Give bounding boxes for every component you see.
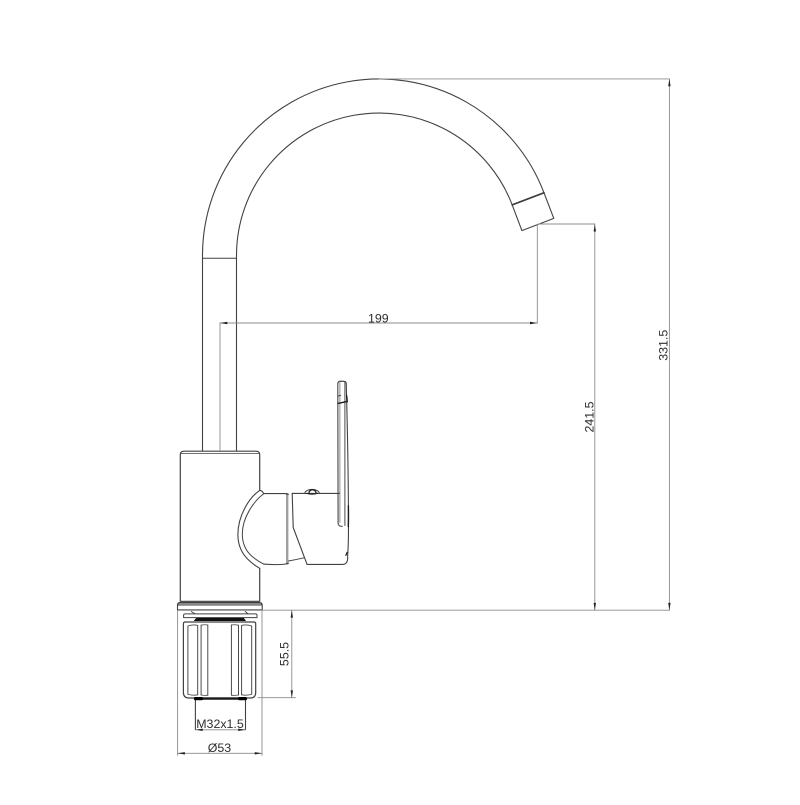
svg-text:Ø53: Ø53 xyxy=(208,741,232,755)
svg-text:55.5: 55.5 xyxy=(278,642,292,666)
svg-text:331.5: 331.5 xyxy=(657,330,671,361)
svg-text:199: 199 xyxy=(368,312,389,326)
svg-text:M32x1.5: M32x1.5 xyxy=(196,717,244,731)
svg-text:241.5: 241.5 xyxy=(582,401,596,432)
